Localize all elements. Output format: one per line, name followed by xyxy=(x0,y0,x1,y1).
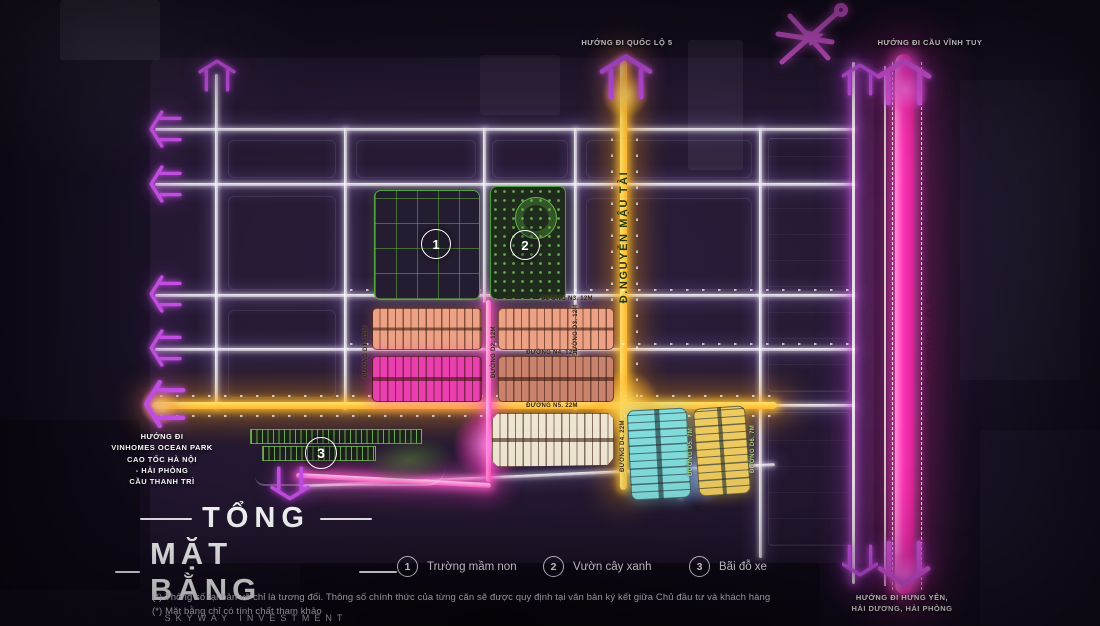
legend-label: Vườn cây xanh xyxy=(573,561,652,573)
direction-label-left: HƯỚNG ĐI VINHOMES OCEAN PARK CAO TỐC HÀ … xyxy=(108,431,216,487)
direction-label-bottom-right: HƯỚNG ĐI HƯNG YÊN, HẢI DƯƠNG, HẢI PHÒNG xyxy=(828,592,976,615)
direction-arrow-icon xyxy=(876,56,932,106)
parcel-rows xyxy=(768,412,850,546)
road-quoc-lo-5 xyxy=(895,54,913,594)
road-white-v2 xyxy=(344,128,347,410)
title-main-line1: TỔNG xyxy=(202,502,310,535)
block-shophouse-cyan xyxy=(627,407,692,500)
parcel-rows xyxy=(768,138,850,392)
direction-label-top-center: HƯỚNG ĐI QUỐC LỘ 5 xyxy=(552,37,702,48)
road-label-quoc-lo-5: Đ.QUỐC LỘ 5 xyxy=(925,295,937,384)
footnote-1: (*) Thông số tại bản vẽ chỉ là tương đối… xyxy=(152,592,770,603)
direction-arrow-icon xyxy=(197,58,237,92)
road-d2-north xyxy=(483,128,486,303)
direction-arrow-icon xyxy=(270,466,310,502)
master-plan-poster: 1 2 3 HƯỚNG ĐI QUỐC LỘ 5 HƯỚNG ĐI CẦU VĨ… xyxy=(0,0,1100,626)
block-shophouse-salmon-west xyxy=(372,308,482,350)
road-white-h5-east xyxy=(772,404,854,407)
legend-label: Bãi đỗ xe xyxy=(719,561,767,573)
block-shophouse-salmon-east xyxy=(498,308,614,350)
legend-label: Trường mầm non xyxy=(427,561,517,573)
title-line xyxy=(140,518,192,520)
direction-label-top-right: HƯỚNG ĐI CẦU VĨNH TUY xyxy=(855,37,1005,48)
block-shophouse-salmon-dim xyxy=(498,356,614,402)
direction-arrow-icon xyxy=(876,540,932,588)
legend-circle: 3 xyxy=(689,556,710,577)
road-label-d6: ĐƯỜNG D6. 7M xyxy=(750,425,756,473)
road-dash-line xyxy=(892,62,893,590)
parcel-outline xyxy=(228,140,336,178)
road-white-v1 xyxy=(215,74,218,409)
marker-number: 2 xyxy=(521,238,528,253)
road-label-d3: ĐƯỜNG D3. 12M xyxy=(573,304,579,356)
background-buildings xyxy=(60,0,160,60)
legend-item-parking: 3 Bãi đỗ xe xyxy=(689,556,767,577)
block-shophouse-cream xyxy=(492,413,614,467)
title-row-1: TỔNG xyxy=(115,502,397,535)
parcel-outline xyxy=(228,196,336,290)
direction-arrow-icon xyxy=(142,380,186,428)
title-line xyxy=(359,571,397,573)
marker-parking: 3 xyxy=(305,437,337,469)
road-label-nguyen-mau-tai: Đ.NGUYỄN MẬU TÀI xyxy=(618,171,630,304)
title-line xyxy=(320,518,372,520)
block-shophouse-magenta xyxy=(372,356,482,402)
block-shophouse-yellow xyxy=(693,405,751,496)
parcel-outline xyxy=(356,140,476,178)
background-buildings xyxy=(980,430,1100,626)
road-label-d5: ĐƯỜNG D5. 7M xyxy=(688,428,694,476)
road-label-d2: ĐƯỜNG D2. 12M xyxy=(491,326,497,378)
road-service-east xyxy=(852,62,855,584)
footnote-2: (*) Mặt bằng chỉ có tính chất tham khảo xyxy=(152,606,322,617)
marker-number: 1 xyxy=(432,237,439,252)
legend-item-kindergarten: 1 Trường mầm non xyxy=(397,556,517,577)
direction-arrow-icon xyxy=(148,110,182,148)
marker-kindergarten: 1 xyxy=(421,229,451,259)
road-label-n3: ĐƯỜNG N3. 12M xyxy=(541,296,593,302)
direction-arrow-icon xyxy=(148,329,182,367)
legend-circle: 2 xyxy=(543,556,564,577)
road-label-n5: ĐƯỜNG N5. 22M xyxy=(526,403,578,409)
title-block: TỔNG MẶT BẰNG SKYWAY INVESTMENT xyxy=(115,502,397,623)
compass-icon xyxy=(766,0,858,72)
title-line xyxy=(115,571,140,573)
direction-arrow-icon xyxy=(842,544,878,578)
direction-arrow-icon xyxy=(598,52,654,100)
direction-arrow-icon xyxy=(148,275,182,313)
road-white-h1 xyxy=(155,128,855,131)
parcel-outline xyxy=(228,310,336,398)
street-lights xyxy=(636,135,638,397)
direction-arrow-icon xyxy=(148,165,182,203)
legend-item-garden: 2 Vườn cây xanh xyxy=(543,556,652,577)
road-dash-line xyxy=(921,62,922,590)
marker-number: 3 xyxy=(317,445,325,461)
road-label-d4: ĐƯỜNG D4. 22M xyxy=(620,420,626,472)
parcel-outline xyxy=(492,140,568,178)
background-buildings xyxy=(960,80,1080,380)
road-label-n4: ĐƯỜNG N4. 12M xyxy=(526,350,578,356)
road-edge-line xyxy=(884,66,886,586)
road-label-d1: ĐƯỜNG D1. 12M xyxy=(363,326,369,378)
marker-garden: 2 xyxy=(510,230,540,260)
legend-circle: 1 xyxy=(397,556,418,577)
